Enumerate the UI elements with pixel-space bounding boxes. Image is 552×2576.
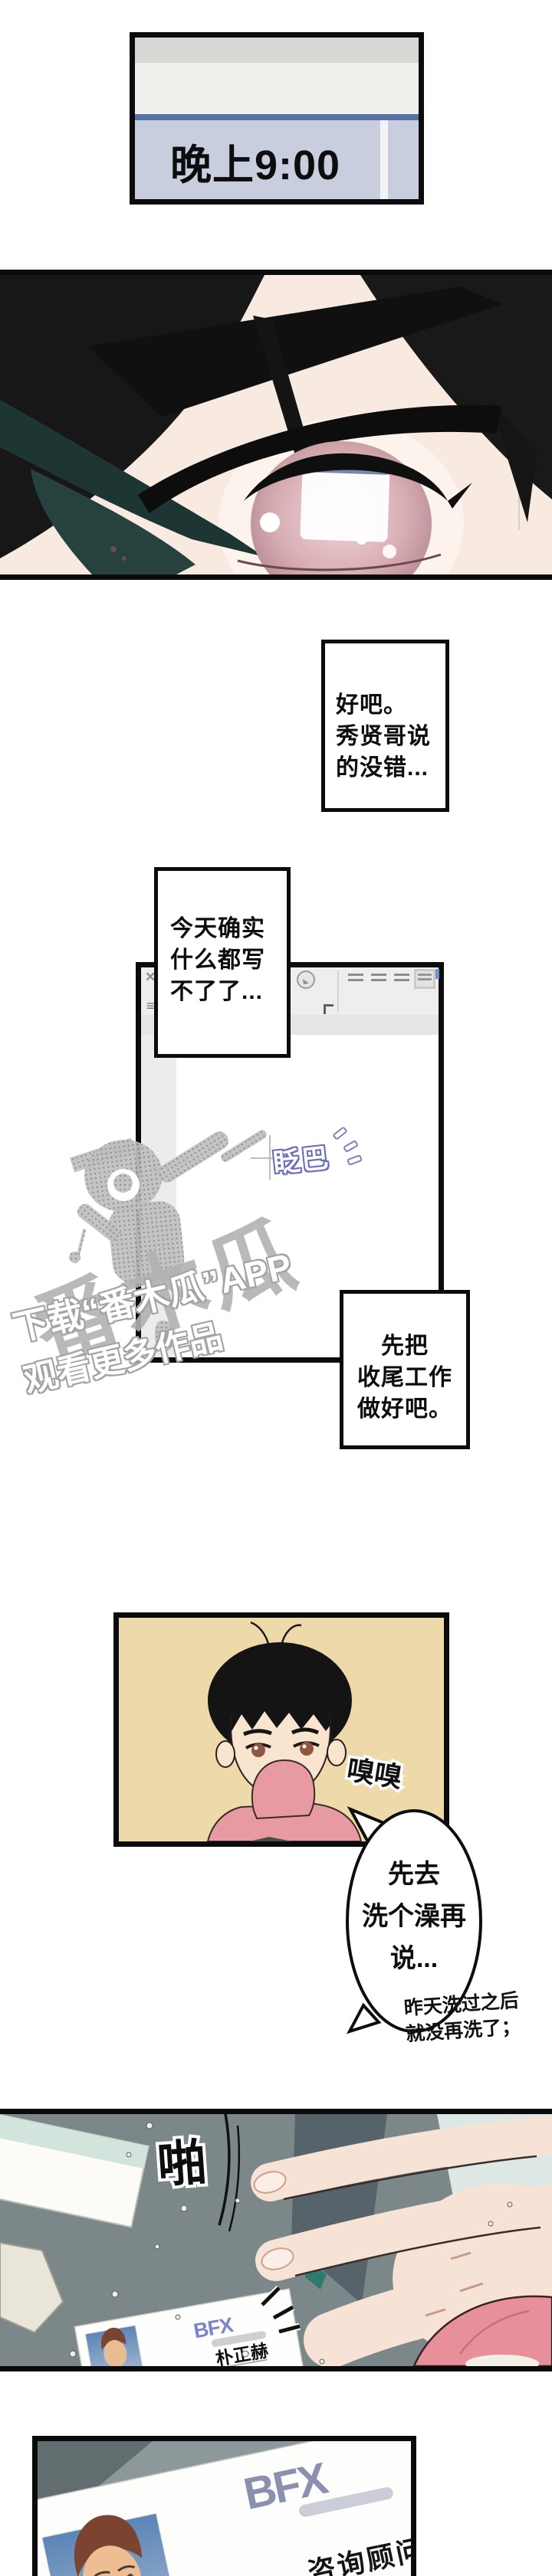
character-ear-left (216, 1741, 235, 1767)
emphasis-dash (343, 1140, 359, 1153)
blue-tab-icon (435, 969, 439, 979)
narration-box-3: 先把 收尾工作 做好吧。 (340, 1290, 470, 1449)
panel-border-top (0, 270, 552, 275)
eye-right (300, 1742, 314, 1756)
clock-time-text: 晚上9:00 (135, 131, 376, 191)
clock-top-bar (135, 38, 419, 63)
bubble-line: 先去 (388, 1860, 440, 1889)
aside-note: 昨天洗过之后 就没再洗了； (403, 1988, 521, 2047)
eye-highlight-left (255, 1746, 258, 1750)
narration-line: 先把 (343, 1331, 466, 1362)
narration-box-2: 今天确实 什么都写 不了了... (154, 867, 291, 1058)
eye-sparkle-3 (383, 545, 396, 558)
eye-sparkle-1 (260, 512, 280, 532)
narration-line: 的没错... (336, 752, 445, 784)
sleeve-paw (252, 1760, 314, 1818)
mole-dot-1 (110, 546, 117, 552)
hair-antenna-2 (281, 1625, 301, 1645)
mascot-hat (70, 1138, 136, 1173)
eye-sparkle-2 (356, 534, 367, 545)
narration-box-1: 好吧。 秀贤哥说 的没错... (321, 640, 449, 812)
panel-desk-hand: BFX 朴正赫 啪 (0, 2109, 552, 2371)
bubble-line: 说... (390, 1944, 438, 1973)
panel-card-closeup: BFX 咨询顾问 朴正赫 (32, 2436, 416, 2576)
eye-screen-reflection (300, 466, 389, 542)
panel-clock: 晚上9:00 (130, 32, 424, 205)
grid-icon (414, 969, 435, 989)
clock-upper-area (135, 63, 419, 114)
eye-highlight-right (303, 1745, 307, 1749)
panel-border-bottom (0, 574, 552, 580)
chat-bubble-icon (297, 971, 315, 989)
eye-left (251, 1743, 265, 1757)
blink-sfx-text: 眨巴 (271, 1136, 332, 1180)
panel-eye-closeup (0, 270, 552, 580)
mole-dot-2 (122, 556, 127, 561)
character-ear-right (327, 1740, 346, 1766)
clock-column-divider (380, 120, 388, 199)
mascot-eye (107, 1169, 140, 1201)
narration-line: 什么都写 (170, 944, 287, 976)
corner-bracket-icon (324, 1004, 333, 1014)
card-closeup-art: BFX 咨询顾问 朴正赫 (38, 2441, 411, 2576)
mascot-pupil (113, 1173, 133, 1193)
list-lines-icon (371, 974, 386, 984)
sniff-sfx-text: 嗅嗅 (345, 1753, 405, 1793)
hair-antenna-1 (251, 1622, 269, 1647)
menu-icon: ≡ (146, 998, 155, 1014)
text-cursor-horizontal (251, 1157, 274, 1159)
slap-sfx-text: 啪 (156, 2135, 209, 2193)
panel-border-top (0, 2109, 552, 2114)
toolbar-separator (337, 971, 339, 1012)
list-lines-icon (394, 974, 409, 984)
narration-line: 不了了... (170, 976, 287, 1007)
narration-line: 今天确实 (170, 913, 287, 944)
emphasis-dash (332, 1126, 348, 1141)
narration-line: 做好吧。 (343, 1393, 466, 1425)
comic-page: 晚上9:00 (0, 0, 552, 2576)
emphasis-dash (347, 1154, 363, 1166)
bubble-line: 洗个澡再 (362, 1902, 466, 1931)
list-lines-icon (348, 974, 363, 984)
narration-line: 好吧。 (336, 689, 445, 721)
panel-border-bottom (0, 2366, 552, 2371)
clock-blue-divider (135, 114, 419, 120)
clock-time-row: 晚上9:00 (135, 120, 419, 199)
narration-line: 秀贤哥说 (336, 721, 445, 752)
narration-line: 收尾工作 (343, 1362, 466, 1393)
